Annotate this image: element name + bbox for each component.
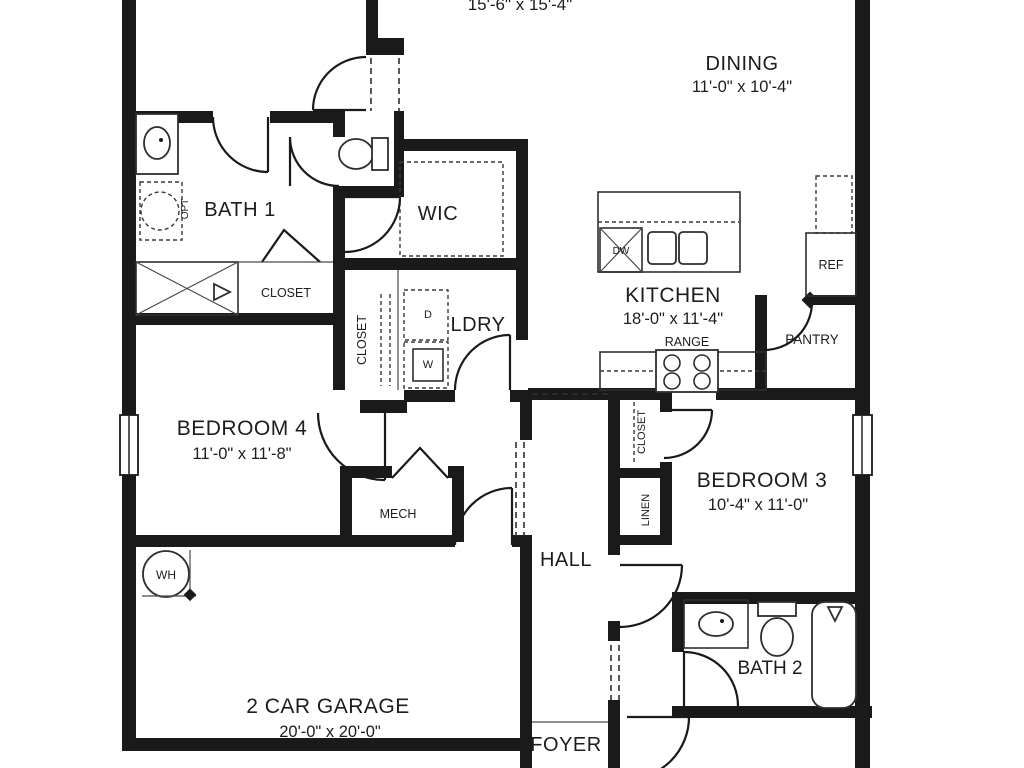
fixture-label-ref: REF (819, 258, 844, 272)
bath2-tub (812, 602, 856, 708)
room-dims-kitchen: 18'-0" x 11'-4" (623, 310, 723, 328)
refrigerator (806, 176, 856, 296)
bath1-optional-tub (140, 182, 182, 240)
room-label-bedroom4: BEDROOM 4 (177, 417, 308, 440)
room-label-bath2: BATH 2 (737, 658, 802, 679)
window-left (120, 415, 138, 475)
closet-label-bath1: CLOSET (261, 286, 311, 300)
cased-openings (371, 58, 619, 700)
room-dims-bedroom4: 11'-0" x 11'-8" (192, 445, 291, 463)
closet-label-ldry: CLOSET (355, 315, 369, 365)
window-right (853, 415, 872, 475)
room-label-garage: 2 CAR GARAGE (246, 695, 410, 718)
room-label-bath1: BATH 1 (204, 199, 276, 221)
fixture-label-washer: W (423, 359, 434, 371)
fixture-label-opt: OPT (180, 199, 191, 220)
great-room-dims-partial: 15'-6" x 15'-4" (468, 0, 573, 14)
fixture-label-range: RANGE (665, 335, 709, 349)
fixture-label-wh: WH (156, 568, 176, 582)
room-dims-bedroom3: 10'-4" x 11'-0" (708, 496, 808, 514)
room-label-pantry: PANTRY (785, 332, 839, 347)
laundry-appliances (404, 290, 448, 388)
kitchen-island (598, 192, 740, 272)
bath2-sink (684, 600, 748, 648)
bath2-toilet (758, 602, 796, 656)
fixture-label-dw: DW (613, 246, 630, 257)
bath1-sink (136, 114, 178, 174)
linen-label: LINEN (640, 494, 652, 526)
floor-plan-page: 15'-6" x 15'-4" DINING 11'-0" x 10'-4" B… (0, 0, 1024, 768)
room-label-foyer: FOYER (530, 734, 601, 756)
interior-walls (136, 0, 872, 768)
floor-plan-drawing: 15'-6" x 15'-4" DINING 11'-0" x 10'-4" B… (0, 0, 1024, 768)
closet-label-bed3: CLOSET (636, 410, 648, 454)
room-label-bedroom3: BEDROOM 3 (697, 469, 828, 492)
kitchen-range (600, 350, 766, 392)
bath1-toilet (339, 138, 388, 170)
room-dims-dining: 11'-0" x 10'-4" (692, 78, 792, 96)
room-label-kitchen: KITCHEN (625, 284, 721, 307)
room-label-ldry: LDRY (451, 314, 506, 336)
room-label-dining: DINING (706, 53, 779, 75)
doors (213, 57, 812, 768)
room-label-hall: HALL (540, 549, 592, 571)
room-label-mech: MECH (380, 507, 417, 521)
fixture-label-dryer: D (424, 309, 432, 321)
room-dims-garage: 20'-0" x 20'-0" (279, 723, 381, 741)
room-label-wic: WIC (418, 203, 458, 225)
